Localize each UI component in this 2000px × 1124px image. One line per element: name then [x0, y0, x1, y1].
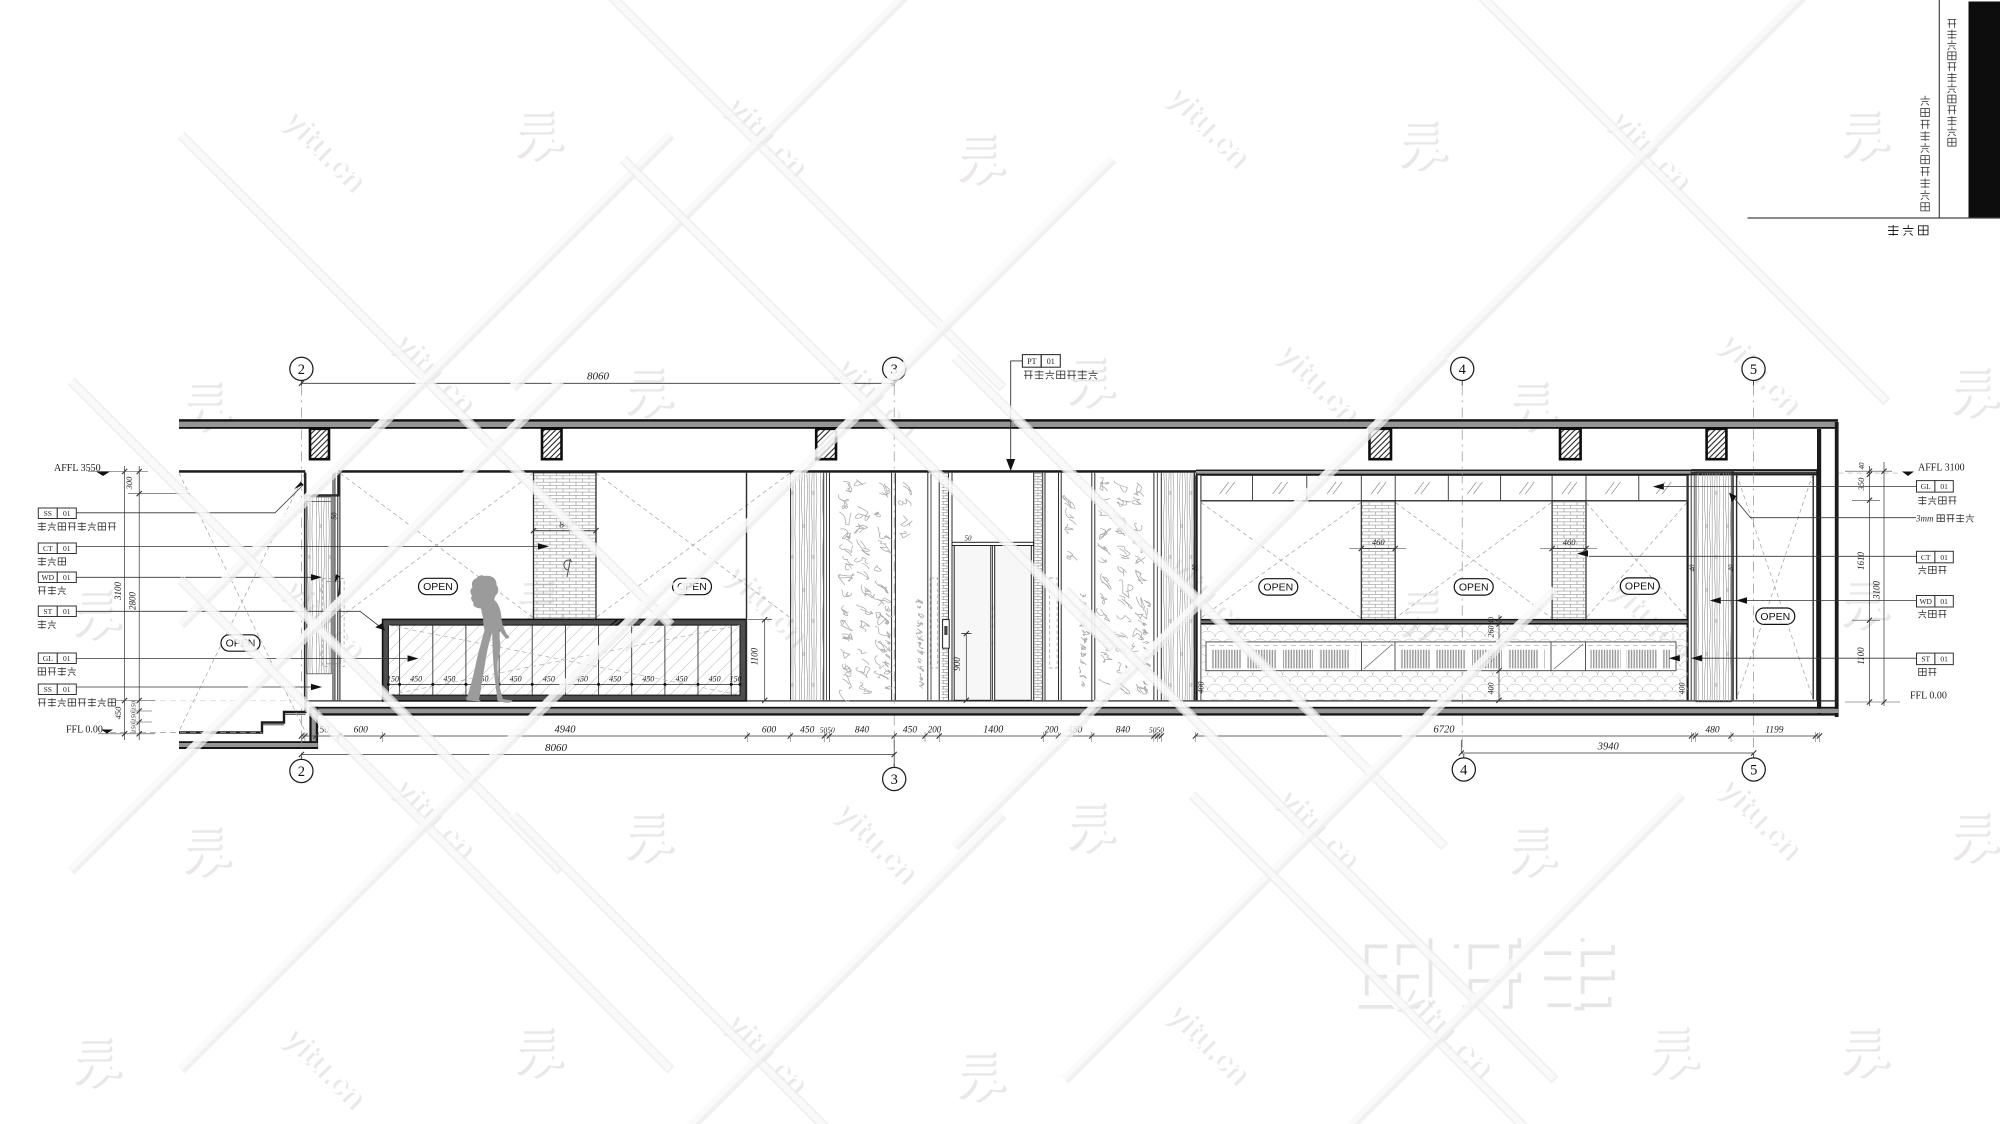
svg-text:FFL 0.00: FFL 0.00: [1910, 691, 1947, 702]
svg-text:01: 01: [63, 509, 71, 518]
svg-text:01: 01: [63, 654, 71, 663]
svg-text:OPEN: OPEN: [1459, 582, 1489, 594]
svg-text:01: 01: [1047, 357, 1055, 366]
svg-text:01: 01: [63, 573, 71, 582]
svg-text:1199: 1199: [1765, 726, 1784, 736]
svg-text:450: 450: [675, 675, 687, 684]
svg-text:840: 840: [1116, 726, 1131, 736]
svg-text:FFL 0.00: FFL 0.00: [66, 725, 103, 736]
svg-text:5: 5: [1750, 362, 1757, 378]
svg-text:450: 450: [642, 675, 654, 684]
svg-text:01: 01: [1940, 482, 1948, 491]
svg-text:01: 01: [63, 607, 71, 616]
svg-text:ST: ST: [43, 607, 52, 616]
svg-text:450: 450: [609, 675, 621, 684]
svg-text:40: 40: [1689, 564, 1697, 572]
svg-text:1610: 1610: [1856, 552, 1866, 571]
svg-text:CT: CT: [43, 544, 53, 553]
svg-text:150: 150: [131, 711, 138, 722]
svg-text:2: 2: [298, 764, 305, 780]
svg-text:6720: 6720: [1434, 725, 1456, 736]
svg-text:400: 400: [1487, 683, 1496, 695]
svg-text:40: 40: [1191, 564, 1199, 572]
svg-text:150: 150: [730, 675, 742, 684]
svg-text:3940: 3940: [1597, 742, 1620, 753]
svg-text:150: 150: [387, 675, 399, 684]
svg-text:2800: 2800: [128, 592, 138, 611]
svg-text:450: 450: [709, 675, 721, 684]
svg-text:3100: 3100: [113, 582, 123, 602]
svg-text:5050: 5050: [1149, 726, 1164, 735]
svg-text:1100: 1100: [1856, 647, 1866, 665]
svg-text:OPEN: OPEN: [1760, 611, 1790, 623]
svg-text:SS: SS: [44, 509, 52, 518]
svg-text:300: 300: [124, 476, 134, 491]
svg-text:01: 01: [63, 544, 71, 553]
svg-text:400: 400: [1677, 683, 1686, 695]
svg-text:460: 460: [1372, 537, 1386, 547]
svg-text:3: 3: [891, 772, 898, 788]
svg-text:150: 150: [131, 700, 138, 711]
svg-text:WD: WD: [1919, 597, 1932, 606]
svg-text:AFFL 3550: AFFL 3550: [54, 463, 101, 474]
svg-text:3mm: 3mm: [1915, 514, 1934, 524]
svg-text:4: 4: [1459, 362, 1467, 378]
svg-text:3100: 3100: [1872, 581, 1882, 601]
svg-text:GL: GL: [43, 654, 53, 663]
svg-text:WD: WD: [42, 573, 55, 582]
svg-text:8060: 8060: [587, 371, 610, 383]
svg-text:150: 150: [131, 722, 138, 733]
svg-text:200: 200: [928, 725, 942, 735]
svg-text:PT: PT: [1027, 357, 1036, 366]
svg-text:600: 600: [354, 726, 369, 736]
svg-text:350: 350: [1856, 477, 1866, 492]
svg-text:01: 01: [63, 685, 71, 694]
svg-text:840: 840: [855, 726, 870, 736]
svg-text:CT: CT: [1921, 553, 1931, 562]
svg-text:450: 450: [443, 675, 455, 684]
svg-text:SS: SS: [44, 685, 52, 694]
svg-text:1400: 1400: [983, 725, 1003, 736]
svg-text:01: 01: [1940, 597, 1948, 606]
svg-text:450: 450: [510, 675, 522, 684]
svg-text:5050: 5050: [820, 726, 835, 735]
svg-text:50: 50: [331, 512, 339, 520]
svg-text:4: 4: [1460, 763, 1468, 779]
svg-text:AFFL 3100: AFFL 3100: [1918, 463, 1965, 474]
svg-text:400: 400: [1197, 682, 1206, 694]
svg-text:OPEN: OPEN: [1625, 581, 1655, 593]
svg-text:600: 600: [762, 726, 777, 736]
svg-text:OPEN: OPEN: [423, 581, 453, 593]
svg-text:01: 01: [1940, 553, 1948, 562]
svg-text:480: 480: [1705, 726, 1720, 736]
svg-text:450: 450: [800, 726, 815, 736]
svg-text:450: 450: [410, 675, 422, 684]
svg-text:4940: 4940: [555, 725, 577, 736]
svg-text:450: 450: [543, 675, 555, 684]
svg-text:40: 40: [1858, 462, 1866, 470]
svg-text:01: 01: [1940, 655, 1948, 664]
svg-text:460: 460: [1563, 537, 1577, 547]
svg-text:200: 200: [1045, 725, 1059, 735]
svg-text:40: 40: [1488, 617, 1496, 625]
svg-text:50: 50: [965, 535, 973, 543]
svg-text:8060: 8060: [545, 742, 568, 754]
svg-text:GL: GL: [1921, 482, 1931, 491]
svg-text:450: 450: [903, 726, 918, 736]
svg-text:260: 260: [1487, 626, 1496, 638]
svg-text:OPEN: OPEN: [1263, 582, 1293, 594]
svg-text:900: 900: [952, 657, 962, 671]
svg-text:ST: ST: [1921, 655, 1930, 664]
svg-text:450: 450: [113, 706, 123, 720]
svg-text:2: 2: [298, 362, 305, 378]
svg-text:5: 5: [1750, 763, 1757, 779]
svg-text:1100: 1100: [750, 647, 760, 665]
